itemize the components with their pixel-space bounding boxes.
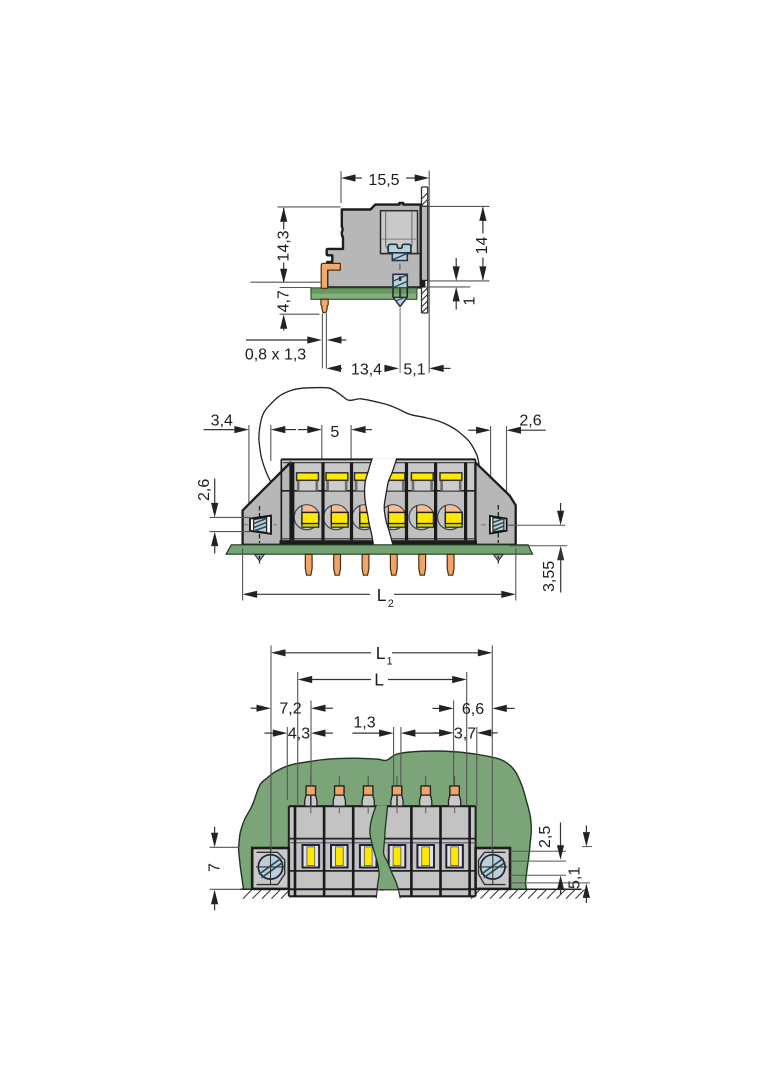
svg-text:15,5: 15,5 — [368, 172, 399, 189]
svg-text:L: L — [377, 585, 387, 605]
svg-text:7,2: 7,2 — [279, 701, 301, 718]
svg-text:6,6: 6,6 — [462, 701, 484, 718]
svg-text:3,4: 3,4 — [211, 413, 233, 430]
svg-text:0,8 x 1,3: 0,8 x 1,3 — [245, 347, 306, 364]
svg-text:L: L — [376, 643, 386, 663]
svg-text:4,7: 4,7 — [276, 290, 293, 312]
svg-text:3,7: 3,7 — [454, 725, 476, 742]
svg-text:1: 1 — [462, 296, 479, 305]
svg-text:5,1: 5,1 — [403, 361, 425, 378]
svg-text:2,5: 2,5 — [537, 826, 554, 848]
svg-text:5: 5 — [330, 424, 339, 441]
svg-text:2,6: 2,6 — [519, 413, 541, 430]
svg-text:1,3: 1,3 — [353, 714, 375, 731]
svg-text:L: L — [374, 670, 384, 690]
svg-text:7: 7 — [207, 863, 224, 872]
svg-text:1: 1 — [386, 656, 392, 668]
svg-text:3,55: 3,55 — [541, 561, 558, 592]
svg-text:2,6: 2,6 — [196, 479, 213, 501]
svg-text:14: 14 — [474, 237, 491, 255]
svg-text:5,1: 5,1 — [567, 867, 584, 889]
svg-text:4,3: 4,3 — [288, 726, 310, 743]
svg-text:13,4: 13,4 — [351, 361, 382, 378]
svg-text:14,3: 14,3 — [276, 230, 293, 261]
svg-text:2: 2 — [388, 598, 394, 610]
